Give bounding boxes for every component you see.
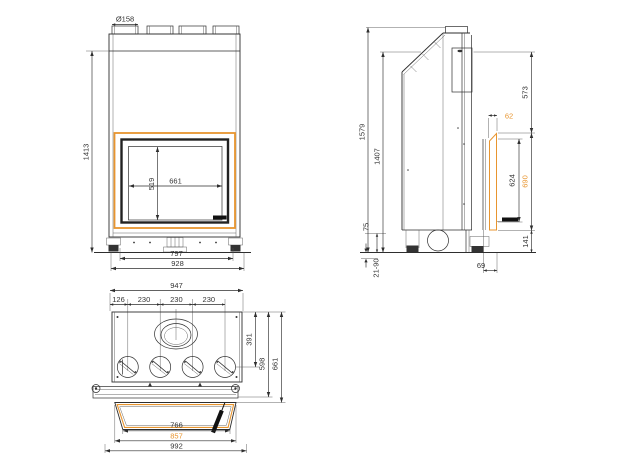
left-foot xyxy=(107,238,121,245)
flue-collar xyxy=(446,27,468,34)
dim-front-depth: 598 xyxy=(258,358,267,371)
dim-pitch-1: 126 xyxy=(112,295,125,304)
flue-stub xyxy=(112,26,138,34)
air-spigot-side xyxy=(428,230,449,251)
plan-view: 947 126 230 230 230 xyxy=(92,281,286,453)
dim-side-overall-height: 1579 xyxy=(358,124,367,141)
dim-pitch-3: 230 xyxy=(170,295,183,304)
plan-body xyxy=(112,312,242,382)
air-stub xyxy=(179,26,206,34)
air-stub xyxy=(213,26,239,34)
side-right-foot xyxy=(472,246,484,253)
dim-door-height: 624 xyxy=(508,174,517,187)
dim-frame-projection: 62 xyxy=(505,112,513,121)
dim-base-width: 797 xyxy=(170,249,183,258)
air-spigots xyxy=(117,357,235,378)
front-view: Ø158 661 519 797 928 xyxy=(82,15,252,272)
dim-feet-range: 21-90 xyxy=(372,258,381,277)
dim-side-body-height: 1407 xyxy=(373,148,382,165)
right-foot xyxy=(229,238,243,245)
dim-base-height: 141 xyxy=(521,235,530,248)
dim-plan-body-width: 947 xyxy=(170,281,183,290)
side-view: 21-90 75 69 573 62 624 690 141 1579 1407 xyxy=(358,27,537,278)
front-crossbar xyxy=(93,387,238,399)
sloped-top xyxy=(402,33,443,72)
dim-top-to-frame: 573 xyxy=(521,86,530,99)
dim-glass-width: 661 xyxy=(169,177,182,186)
dim-glass-height: 519 xyxy=(147,178,156,191)
dim-flue-depth: 391 xyxy=(245,333,254,346)
door-handle xyxy=(213,216,227,220)
dim-overall-width-plan: 992 xyxy=(170,441,183,450)
dim-body-width: 928 xyxy=(171,259,184,268)
dim-foot-depth: 69 xyxy=(477,261,485,270)
dim-glass-width-plan: 766 xyxy=(170,421,183,430)
dim-pitch-4: 230 xyxy=(203,295,216,304)
dim-plinth-height: 75 xyxy=(362,223,371,231)
dim-frame-width-plan: 857 xyxy=(170,431,183,440)
dim-glass-depth: 661 xyxy=(271,358,280,371)
frame-strip xyxy=(490,134,497,231)
dim-flue-diameter: Ø158 xyxy=(116,15,134,24)
fireplace-dimension-drawing: Ø158 661 519 797 928 xyxy=(0,0,624,460)
dim-front-overall-height: 1413 xyxy=(82,144,91,161)
side-left-foot xyxy=(407,246,419,253)
technical-drawing-page: Ø158 661 519 797 928 xyxy=(0,0,624,460)
dim-pitch-2: 230 xyxy=(138,295,151,304)
handle-side xyxy=(502,218,518,222)
dim-frame-height: 690 xyxy=(521,175,530,188)
air-stub xyxy=(147,26,173,34)
